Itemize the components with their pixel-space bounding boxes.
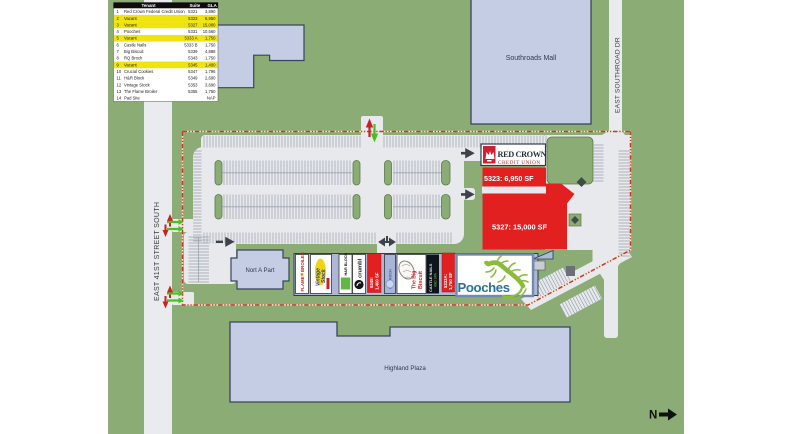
svg-text:11: 11 — [117, 76, 122, 81]
svg-text:1,400: 1,400 — [205, 62, 216, 67]
svg-text:FLAME: FLAME — [300, 276, 305, 291]
svg-text:Pooches: Pooches — [458, 280, 510, 295]
svg-text:1,750: 1,750 — [205, 56, 216, 61]
svg-text:Tenant: Tenant — [142, 3, 157, 8]
svg-text:5333A:: 5333A: — [443, 273, 448, 288]
svg-text:2,690: 2,690 — [205, 76, 216, 81]
svg-text:crumbl: crumbl — [357, 258, 363, 278]
svg-text:BROILER: BROILER — [300, 251, 305, 272]
svg-text:5345: 5345 — [188, 62, 198, 67]
svg-text:1,796: 1,796 — [205, 69, 216, 74]
svg-text:Big Biscuit: Big Biscuit — [124, 49, 144, 54]
svg-text:The Big: The Big — [412, 271, 418, 289]
svg-text:H&R Block: H&R Block — [124, 76, 145, 81]
svg-text:5345:: 5345: — [369, 276, 374, 288]
svg-text:5355: 5355 — [188, 89, 198, 94]
svg-text:Pooches: Pooches — [124, 29, 140, 34]
svg-text:5327: 15,000 SF: 5327: 15,000 SF — [492, 223, 548, 232]
svg-text:1,750: 1,750 — [205, 36, 216, 41]
svg-text:Vintage Stock: Vintage Stock — [124, 82, 151, 87]
svg-text:13: 13 — [117, 89, 122, 94]
svg-text:GLA: GLA — [208, 3, 218, 8]
svg-text:Pad Site: Pad Site — [124, 96, 141, 101]
svg-text:N: N — [649, 410, 657, 422]
svg-text:Biscuit: Biscuit — [418, 271, 424, 289]
svg-text:5353: 5353 — [188, 82, 198, 87]
svg-text:Vacant: Vacant — [124, 16, 138, 21]
svg-text:Vacant: Vacant — [124, 22, 138, 27]
svg-text:NAP: NAP — [207, 96, 216, 101]
svg-text:5333 B: 5333 B — [184, 42, 197, 47]
svg-text:5323: 6,950 SF: 5323: 6,950 SF — [484, 174, 534, 183]
svg-text:5327: 5327 — [188, 22, 198, 27]
svg-text:10,560: 10,560 — [203, 29, 216, 34]
svg-text:6,950: 6,950 — [205, 16, 216, 21]
svg-text:CREDIT UNION: CREDIT UNION — [498, 160, 541, 166]
svg-text:10: 10 — [117, 69, 122, 74]
svg-text:5339: 5339 — [188, 49, 198, 54]
svg-text:5347: 5347 — [188, 69, 198, 74]
svg-text:1,750 SF: 1,750 SF — [448, 272, 453, 290]
svg-text:4,888: 4,888 — [205, 49, 216, 54]
svg-text:RED CROWN: RED CROWN — [498, 150, 547, 159]
svg-text:5333 A: 5333 A — [184, 36, 197, 41]
svg-text:Vacant: Vacant — [124, 62, 138, 67]
svg-text:Southroads Mall: Southroads Mall — [506, 55, 557, 62]
svg-text:Stock: Stock — [321, 269, 327, 283]
svg-text:Vacant: Vacant — [124, 36, 138, 41]
svg-text:H&R BLOCK: H&R BLOCK — [344, 252, 348, 275]
svg-text:Highland Plaza: Highland Plaza — [384, 365, 426, 372]
svg-text:5349: 5349 — [188, 76, 198, 81]
svg-text:3,890: 3,890 — [205, 9, 216, 14]
svg-text:CASTLE NAILS: CASTLE NAILS — [428, 263, 433, 292]
svg-text:1,750: 1,750 — [205, 42, 216, 47]
svg-text:EAST SOUTHROAD DR: EAST SOUTHROAD DR — [615, 37, 622, 113]
svg-text:Red Crown Federal Credit Union: Red Crown Federal Credit Union — [124, 9, 185, 14]
svg-text:3,690: 3,690 — [205, 82, 216, 87]
svg-text:5331: 5331 — [188, 29, 198, 34]
svg-text:Crucial Cookies: Crucial Cookies — [124, 69, 153, 74]
svg-text:The Flame Broiler: The Flame Broiler — [124, 89, 158, 94]
svg-text:12: 12 — [117, 82, 122, 87]
svg-text:5321: 5321 — [188, 9, 198, 14]
svg-text:Nort A Part: Nort A Part — [245, 268, 274, 274]
svg-text:5343: 5343 — [188, 56, 198, 61]
svg-text:1,750: 1,750 — [205, 89, 216, 94]
svg-text:14: 14 — [117, 96, 122, 101]
svg-text:5323: 5323 — [188, 16, 198, 21]
svg-text:EAST 41ST STREET SOUTH: EAST 41ST STREET SOUTH — [154, 202, 161, 301]
svg-text:Suite: Suite — [190, 3, 201, 8]
svg-text:RQ Broch: RQ Broch — [124, 56, 143, 61]
svg-text:1,400 SF: 1,400 SF — [374, 272, 379, 290]
svg-text:15,000: 15,000 — [203, 22, 216, 27]
svg-text:Castle Nails: Castle Nails — [124, 42, 146, 47]
svg-text:AND SPA: AND SPA — [434, 272, 438, 287]
